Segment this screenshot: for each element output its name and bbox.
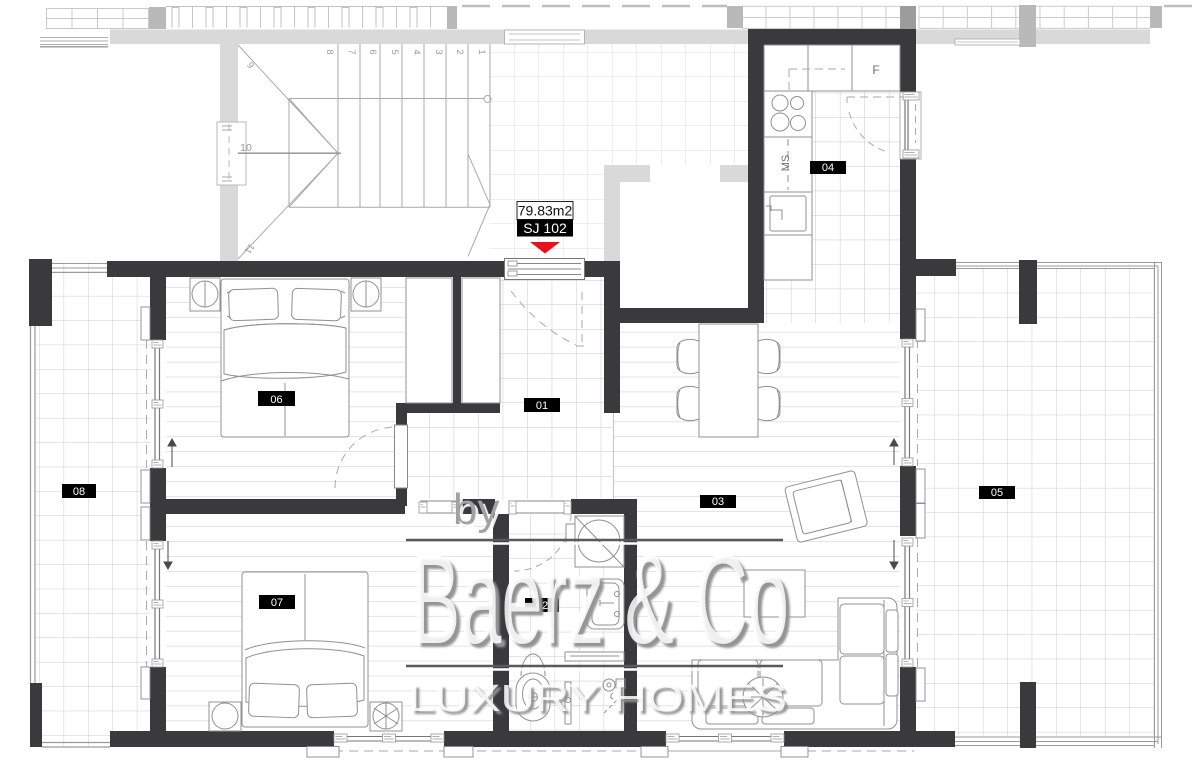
svg-text:6: 6 — [367, 49, 378, 54]
svg-text:04: 04 — [822, 162, 834, 174]
svg-text:LUXURY HOMES: LUXURY HOMES — [408, 678, 787, 720]
svg-text:79.83m2: 79.83m2 — [518, 203, 573, 219]
svg-text:3: 3 — [433, 49, 444, 54]
svg-text:1: 1 — [476, 49, 487, 54]
svg-text:08: 08 — [73, 486, 85, 498]
svg-text:03: 03 — [712, 496, 724, 508]
svg-text:5: 5 — [389, 49, 400, 54]
svg-text:8: 8 — [324, 49, 335, 54]
svg-text:01: 01 — [536, 400, 548, 412]
svg-text:07: 07 — [271, 597, 283, 609]
svg-text:4: 4 — [411, 49, 422, 54]
svg-text:7: 7 — [346, 49, 357, 54]
svg-text:05: 05 — [991, 487, 1003, 499]
svg-text:by: by — [453, 485, 499, 534]
svg-text:MS: MS — [780, 155, 792, 172]
svg-text:06: 06 — [270, 394, 282, 406]
svg-text:SJ 102: SJ 102 — [523, 220, 567, 236]
svg-text:Baerz & Co: Baerz & Co — [411, 528, 789, 670]
svg-text:10: 10 — [240, 142, 252, 154]
svg-text:2: 2 — [454, 49, 465, 54]
svg-text:F: F — [872, 63, 879, 77]
